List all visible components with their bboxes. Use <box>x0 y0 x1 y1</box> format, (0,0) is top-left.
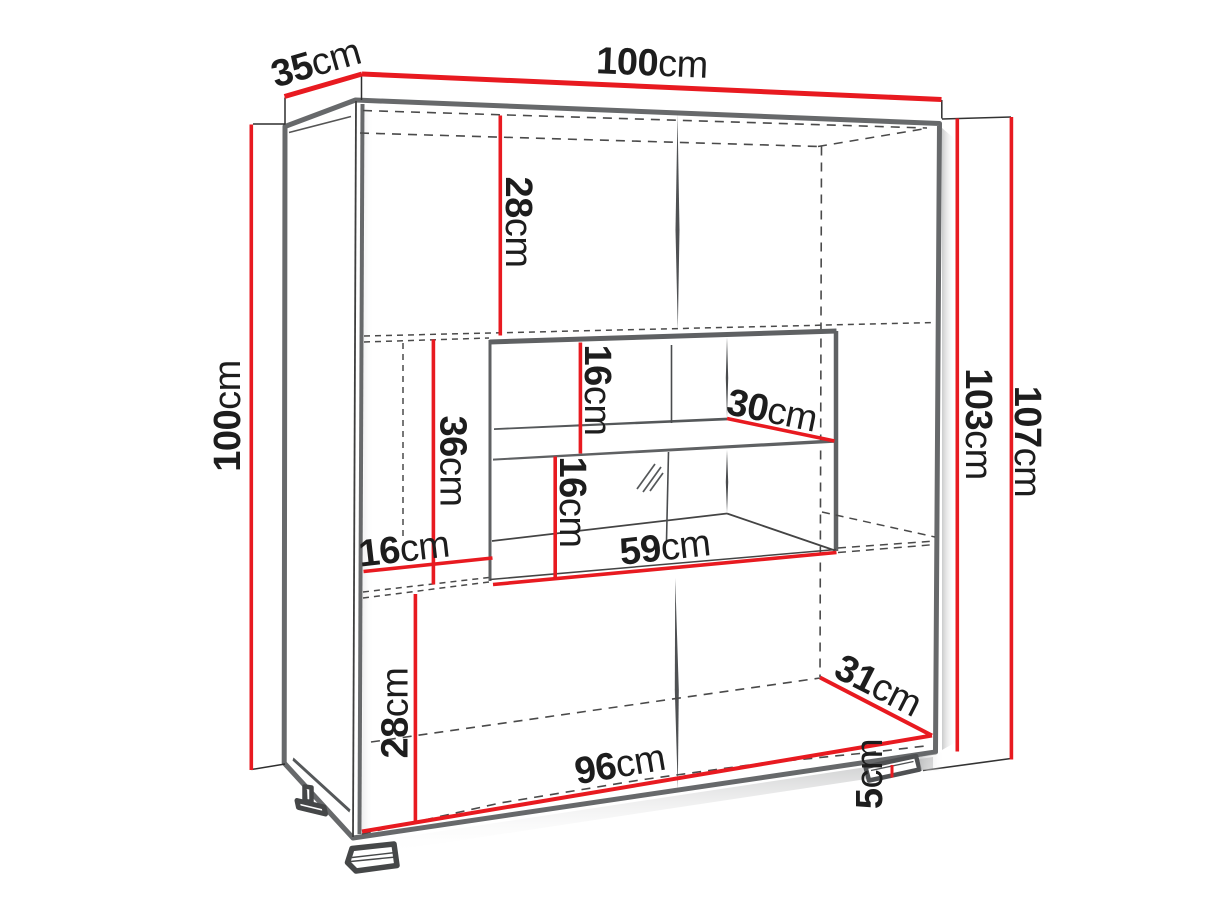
svg-text:28cm: 28cm <box>375 668 417 759</box>
svg-text:16cm: 16cm <box>576 345 618 436</box>
svg-text:100cm: 100cm <box>207 360 249 472</box>
svg-text:5cm: 5cm <box>849 739 891 809</box>
svg-text:107cm: 107cm <box>1006 386 1048 498</box>
svg-text:16cm: 16cm <box>551 457 593 548</box>
svg-text:36cm: 36cm <box>432 416 474 507</box>
svg-text:28cm: 28cm <box>497 177 539 268</box>
svg-text:100cm: 100cm <box>595 40 708 87</box>
svg-text:103cm: 103cm <box>957 368 999 480</box>
